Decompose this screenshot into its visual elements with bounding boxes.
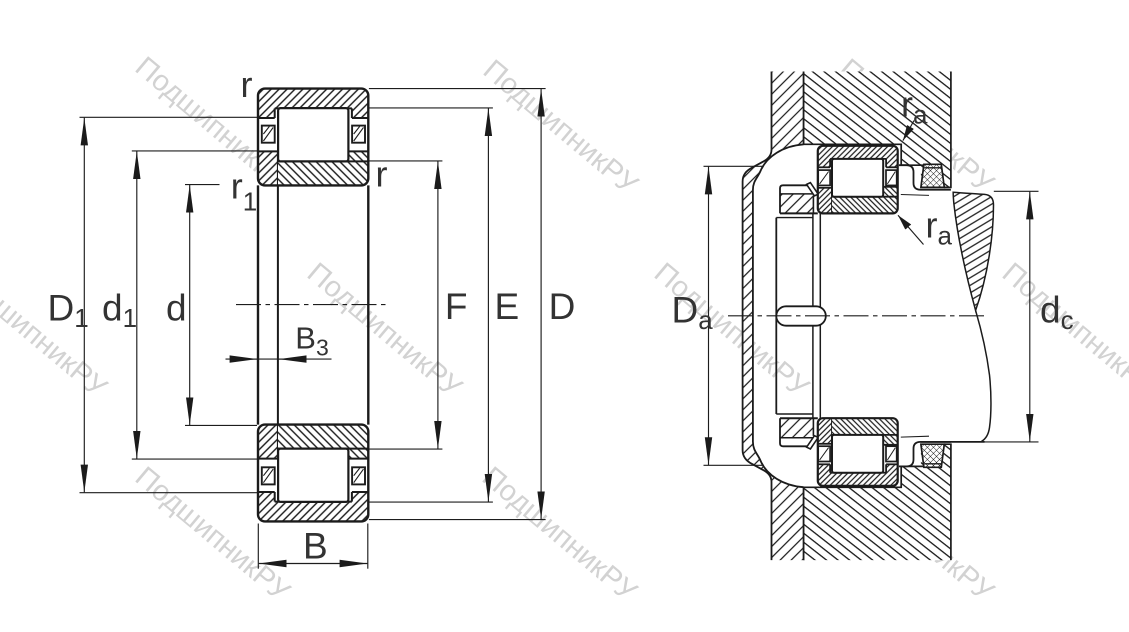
svg-text:r: r: [241, 64, 253, 105]
svg-text:d: d: [166, 288, 187, 329]
svg-text:E: E: [495, 286, 520, 327]
svg-text:r: r: [376, 154, 388, 195]
svg-text:F: F: [445, 286, 468, 327]
svg-text:D: D: [549, 286, 576, 327]
svg-text:B: B: [303, 526, 328, 567]
